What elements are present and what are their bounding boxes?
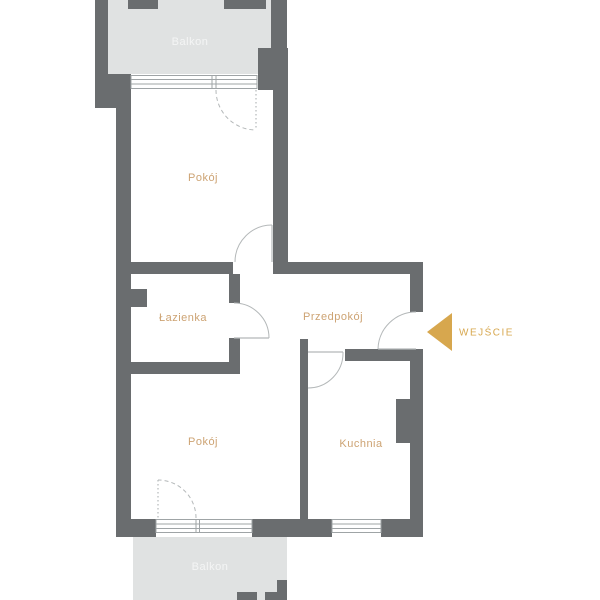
door-top-room	[235, 225, 272, 262]
room-label-pokoj-top: Pokój	[188, 172, 218, 184]
room-label-balkon-bottom: Balkon	[192, 561, 229, 573]
floor-plan-drawing	[0, 0, 600, 600]
walls	[95, 0, 423, 600]
entrance-label: WEJŚCIE	[459, 328, 514, 339]
room-label-pokoj-bottom: Pokój	[188, 436, 218, 448]
room-label-balkon-top: Balkon	[172, 36, 209, 48]
door-balcony-top	[216, 90, 256, 130]
door-kitchen	[308, 352, 343, 388]
room-label-przedpokoj: Przedpokój	[303, 311, 363, 323]
entrance-arrow-icon	[427, 313, 452, 351]
window-bottom-room	[156, 520, 252, 533]
door-entrance	[378, 312, 416, 349]
door-balcony-bottom	[158, 480, 196, 518]
door-bathroom	[234, 303, 269, 338]
floor-plan: Balkon Pokój Łazienka Przedpokój Pokój K…	[0, 0, 600, 600]
room-label-kuchnia: Kuchnia	[339, 438, 382, 450]
window-top	[131, 76, 257, 89]
room-label-lazienka: Łazienka	[159, 312, 207, 324]
window-kitchen	[332, 520, 381, 533]
